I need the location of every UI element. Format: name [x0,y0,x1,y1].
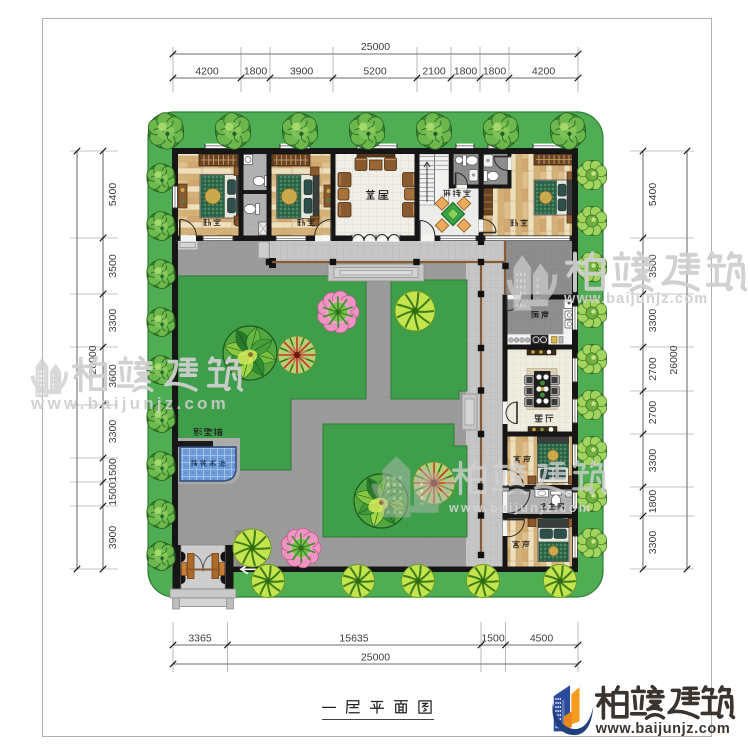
svg-text:1800: 1800 [454,66,478,78]
svg-text:3300: 3300 [647,309,659,333]
svg-text:3600: 3600 [107,364,119,388]
svg-text:26000: 26000 [668,345,680,374]
svg-text:2700: 2700 [647,357,659,381]
svg-text:1500: 1500 [107,458,119,482]
svg-text:www.baijunjz.com: www.baijunjz.com [30,394,229,413]
svg-text:25000: 25000 [361,652,390,664]
svg-text:1800: 1800 [647,490,659,514]
svg-text:4200: 4200 [195,66,219,78]
svg-text:5400: 5400 [107,183,119,207]
svg-text:1500: 1500 [107,482,119,506]
svg-text:4200: 4200 [532,66,556,78]
svg-text:3500: 3500 [107,254,119,278]
svg-text:3300: 3300 [107,309,119,333]
svg-text:3300: 3300 [647,531,659,555]
svg-text:2700: 2700 [647,401,659,425]
svg-text:1800: 1800 [244,66,268,78]
svg-text:2100: 2100 [422,66,446,78]
svg-text:15635: 15635 [339,633,368,645]
svg-text:www.baijunjz.com: www.baijunjz.com [563,291,708,307]
svg-text:5400: 5400 [647,183,659,207]
svg-text:4500: 4500 [530,633,554,645]
svg-text:25000: 25000 [361,41,390,53]
svg-text:3300: 3300 [647,449,659,473]
svg-text:1500: 1500 [481,633,505,645]
svg-text:5200: 5200 [363,66,387,78]
svg-text:3900: 3900 [290,66,314,78]
svg-text:3900: 3900 [107,526,119,550]
svg-text:1800: 1800 [483,66,507,78]
svg-text:www.baijunjz.com: www.baijunjz.com [595,721,731,737]
svg-text:3300: 3300 [107,420,119,444]
svg-text:3365: 3365 [188,633,212,645]
svg-text:www.baijunjz.com: www.baijunjz.com [448,501,592,515]
